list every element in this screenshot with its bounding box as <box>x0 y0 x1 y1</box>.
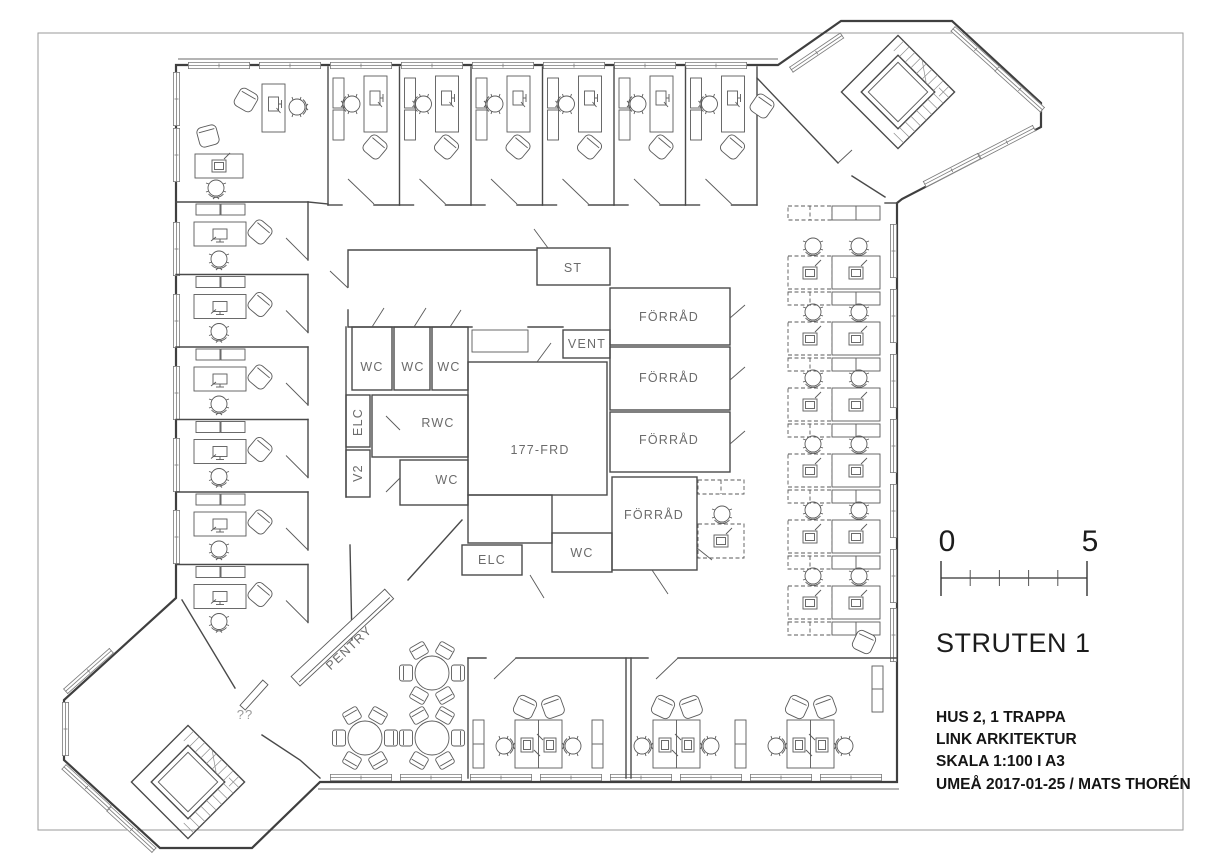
label-v2: V2 <box>351 464 365 482</box>
office-room <box>471 67 543 205</box>
office-room <box>176 275 308 343</box>
room-forrad-4 <box>612 477 697 570</box>
office-room <box>686 67 758 205</box>
office-room <box>176 202 308 270</box>
desk-pair-row <box>788 568 880 635</box>
desk-pair-row <box>788 502 880 569</box>
room-band-bottom <box>333 641 898 778</box>
info-line-3: SKALA 1:100 I A3 <box>936 753 1065 770</box>
room-wc-2 <box>394 327 430 390</box>
round-table <box>333 706 398 770</box>
info-line-2: LINK ARKITEKTUR <box>936 731 1077 748</box>
stairwell-bottom-left <box>131 725 244 838</box>
double-desk-cluster <box>496 694 581 768</box>
office-room <box>176 492 308 560</box>
office-room <box>328 67 400 205</box>
label-vent: VENT <box>568 337 606 351</box>
drawing-sheet: ST FÖRRÅD FÖRRÅD FÖRRÅD FÖRRÅD VENT WC W… <box>0 0 1220 862</box>
label-wc-4: WC <box>435 473 458 487</box>
label-forrad-2: FÖRRÅD <box>639 370 699 385</box>
office-room <box>543 67 615 205</box>
desk-pair-row <box>788 436 880 503</box>
label-elc-2: ELC <box>478 553 506 567</box>
info-line-4: UMEÅ 2017-01-25 / MATS THORÉN <box>936 776 1191 793</box>
label-rwc: RWC <box>421 416 454 430</box>
label-wc-1: WC <box>360 360 383 374</box>
label-forrad-3: FÖRRÅD <box>639 432 699 447</box>
stairwell-top-right <box>841 35 954 148</box>
round-table <box>400 641 465 705</box>
label-elc-1: ELC <box>351 408 365 436</box>
label-177-frd: 177-FRD <box>510 443 569 457</box>
room-wc-1 <box>352 327 392 390</box>
armchair <box>748 92 776 120</box>
entrance-door-leaf <box>240 680 268 710</box>
round-table <box>400 706 465 770</box>
workstation-dashed-single <box>698 480 744 558</box>
desk-pair-row <box>788 238 880 305</box>
office-room <box>614 67 686 205</box>
label-wc-3: WC <box>437 360 460 374</box>
scale-start-label: 0 <box>939 525 956 558</box>
pentry-counter <box>291 589 393 686</box>
title-block: STRUTEN 1 HUS 2, 1 TRAPPA LINK ARKITEKTU… <box>936 628 1191 793</box>
scale-bar: 0 5 <box>939 525 1099 596</box>
label-unknown: ?? <box>237 707 253 722</box>
core-room <box>468 495 552 543</box>
office-band-left <box>176 202 308 633</box>
double-desk-cluster <box>768 694 853 768</box>
floor-plan-svg: ST FÖRRÅD FÖRRÅD FÖRRÅD FÖRRÅD VENT WC W… <box>0 0 1220 862</box>
room-177-frd <box>468 362 607 495</box>
scale-end-label: 5 <box>1082 525 1099 558</box>
office-room <box>176 347 308 415</box>
desk-pair-row <box>788 304 880 371</box>
info-line-1: HUS 2, 1 TRAPPA <box>936 709 1066 726</box>
double-desk-cluster <box>634 694 719 768</box>
office-room <box>400 67 472 205</box>
label-forrad-4: FÖRRÅD <box>624 507 684 522</box>
label-wc-2: WC <box>401 360 424 374</box>
office-room <box>176 420 308 488</box>
label-st: ST <box>564 261 582 275</box>
workstation-band-right <box>788 206 880 655</box>
label-forrad-1: FÖRRÅD <box>639 309 699 324</box>
corner-lobby-walls <box>182 78 885 778</box>
room-wc-3 <box>432 327 468 390</box>
office-band-top <box>328 67 776 205</box>
corner-office-top-left <box>195 84 328 204</box>
project-title: STRUTEN 1 <box>936 628 1091 658</box>
label-wc-5: WC <box>570 546 593 560</box>
desk-pair-row <box>788 370 880 437</box>
